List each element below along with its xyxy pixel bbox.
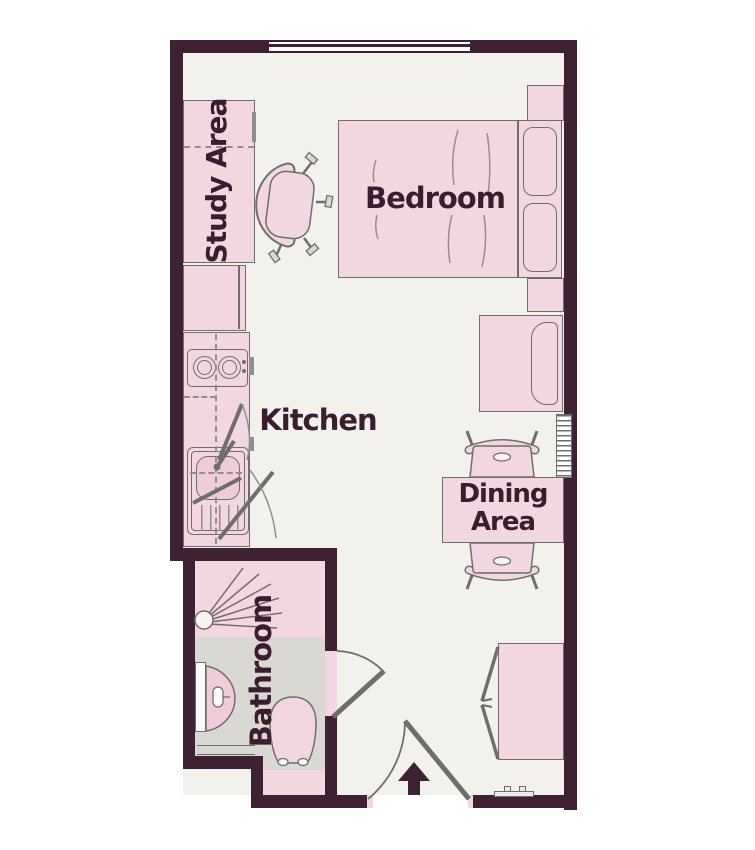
room-label-dining-line1: Dining xyxy=(433,480,573,508)
tall-unit-inner-line xyxy=(238,266,240,329)
headboard-shelf-top xyxy=(527,85,564,121)
threshold-tab-1 xyxy=(504,786,511,792)
vestibule-floor xyxy=(263,770,325,795)
counter-center-dashed xyxy=(215,334,217,544)
room-label-dining: Dining Area xyxy=(433,480,573,536)
entrance-jamb-left xyxy=(367,795,373,808)
bathroom-sink-backplate xyxy=(195,662,206,732)
tall-unit xyxy=(183,265,246,331)
wall-top-left xyxy=(170,40,270,53)
sink-drainer xyxy=(201,505,239,531)
armchair-back-cushion xyxy=(531,322,558,405)
basin-cross-dashed xyxy=(190,472,242,474)
hob-knob-2 xyxy=(242,369,246,373)
room-label-bedroom: Bedroom xyxy=(345,183,525,214)
radiator xyxy=(556,414,572,478)
window-glass-line xyxy=(269,44,470,47)
wardrobe xyxy=(498,643,564,760)
counter-handle-upper xyxy=(249,357,254,375)
wall-top-right xyxy=(470,40,577,53)
threshold-tab-2 xyxy=(519,786,526,792)
room-label-study: Study Area xyxy=(202,96,236,266)
pillow-bottom xyxy=(523,203,557,272)
desk-monitor xyxy=(252,112,256,142)
wall-bathroom-right-upper xyxy=(325,548,337,651)
floorplan-canvas: Study Area Bedroom Kitchen Dining Area B… xyxy=(0,0,755,850)
pillow-top xyxy=(523,127,557,196)
headboard-shelf-bottom xyxy=(527,278,564,312)
hob-burner-left-inner xyxy=(197,360,212,375)
sink-basin xyxy=(196,456,240,500)
room-label-dining-line2: Area xyxy=(433,508,573,536)
entrance-jamb-right xyxy=(468,795,473,808)
counter-cross-dashed xyxy=(184,396,216,398)
room-label-kitchen: Kitchen xyxy=(243,405,393,436)
wall-bathroom-top xyxy=(170,548,337,561)
wall-left xyxy=(170,40,183,551)
bathroom-door-threshold xyxy=(325,651,337,716)
wall-bottom-left xyxy=(251,795,373,808)
wall-bathroom-left xyxy=(183,548,195,769)
room-label-bathroom: Bathroom xyxy=(246,581,280,761)
counter-handle-lower xyxy=(249,437,254,451)
hob-burner-right-inner xyxy=(222,360,237,375)
wall-bathroom-right-lower xyxy=(325,716,337,808)
hob-knob-1 xyxy=(242,360,246,364)
threshold-strip xyxy=(494,791,534,797)
window xyxy=(269,40,470,53)
